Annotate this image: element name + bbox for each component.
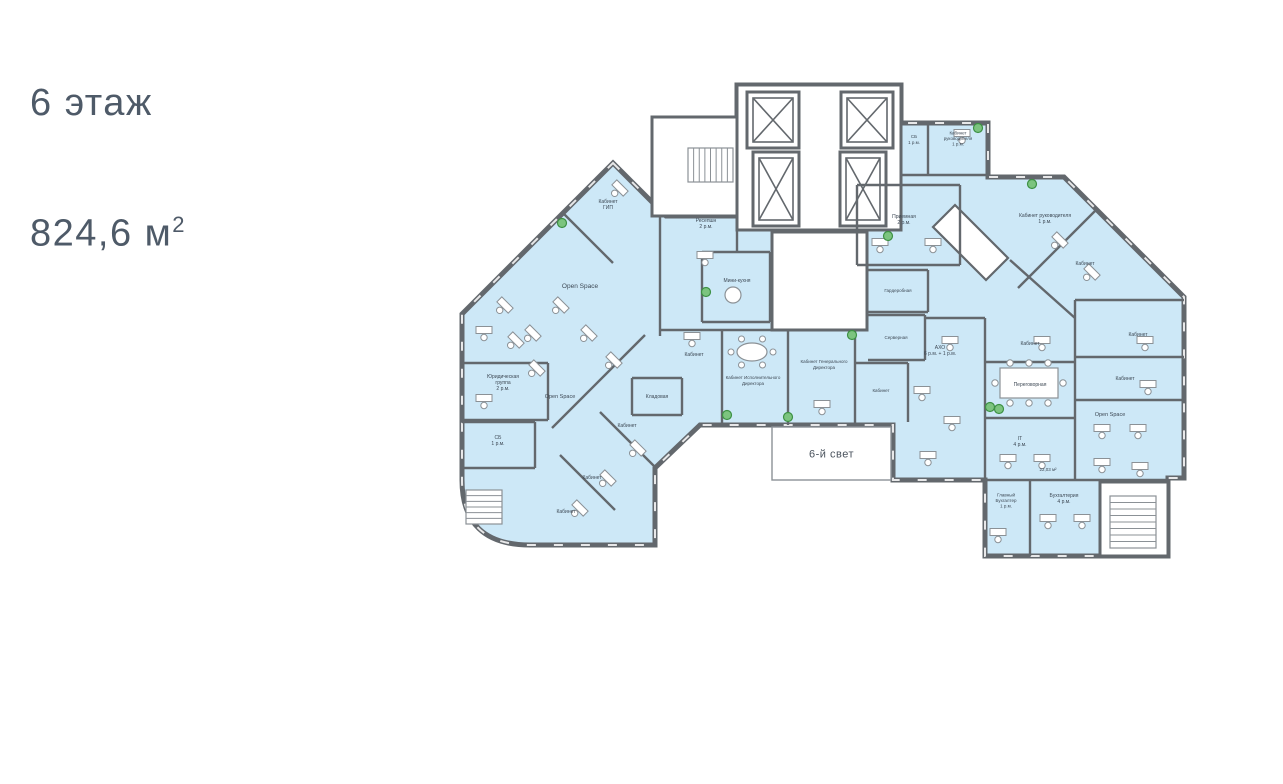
room-label-mini-kuhnya: Мини-кухня xyxy=(724,278,751,284)
stairs-icon xyxy=(466,490,502,524)
floor-plan: 6-й светКабинетГИПOpen SpaceOpen SpaceЮр… xyxy=(0,0,1283,779)
room-label-kabinet-left-office: Кабинет xyxy=(684,352,704,358)
elevator-shaft-icon xyxy=(753,152,799,226)
plant-icon xyxy=(995,405,1004,414)
plant-icon xyxy=(848,331,857,340)
room-label-open-space-right: Open Space xyxy=(1095,412,1126,418)
room-label-kabinet-lw-2: Кабинет xyxy=(582,475,602,481)
page-background: 6 этаж 824,6 м2 6-й светКабинетГИПOpen S… xyxy=(0,0,1283,779)
room-label-it-room-area: 22,03 м² xyxy=(1039,467,1057,472)
atrium-label: 6-й свет xyxy=(809,449,854,461)
stairs-icon xyxy=(688,148,733,182)
room-label-kabinet-col-1: Кабинет xyxy=(1020,341,1040,347)
room-label-open-space-left-upper: Open Space xyxy=(562,283,599,290)
plant-icon xyxy=(784,413,793,422)
room-label-kabinet-center-small: Кабинет xyxy=(872,388,889,393)
wc-block xyxy=(772,232,867,330)
plant-icon xyxy=(723,411,732,420)
plant-icon xyxy=(884,232,893,241)
room-label-kabinet-right-2: Кабинет xyxy=(1115,376,1135,382)
room-label-kabinet-right-1: Кабинет xyxy=(1128,332,1148,338)
plant-icon xyxy=(702,288,711,297)
room-label-kabinet-lw-1: Кабинет xyxy=(617,423,637,429)
plant-icon xyxy=(986,403,995,412)
atrium: 6-й свет xyxy=(772,427,891,480)
plant-icon xyxy=(1028,180,1037,189)
elevator-shaft-icon xyxy=(747,92,799,148)
room-label-peregovornaya: Переговорная xyxy=(1014,382,1047,388)
room-label-kabinet-diag: Кабинет xyxy=(1075,261,1095,267)
plant-icon xyxy=(558,219,567,228)
room-label-kabinet-lw-3: Кабинет xyxy=(556,509,576,515)
elevator-shaft-icon xyxy=(840,152,886,226)
plant-icon xyxy=(974,124,983,133)
room-label-open-space-left-lower: Open Space xyxy=(545,394,576,400)
elevator-shaft-icon xyxy=(841,92,893,148)
stairs-icon xyxy=(1110,496,1156,548)
room-label-servernaya: Серверная xyxy=(884,335,908,340)
room-label-kladovaya: Кладовая xyxy=(646,394,669,400)
floor-plan-svg: 6-й светКабинетГИПOpen SpaceOpen SpaceЮр… xyxy=(0,0,1283,779)
room-label-garderobnaya: Гардеробная xyxy=(884,288,912,293)
kitchen-table-icon xyxy=(725,287,741,303)
